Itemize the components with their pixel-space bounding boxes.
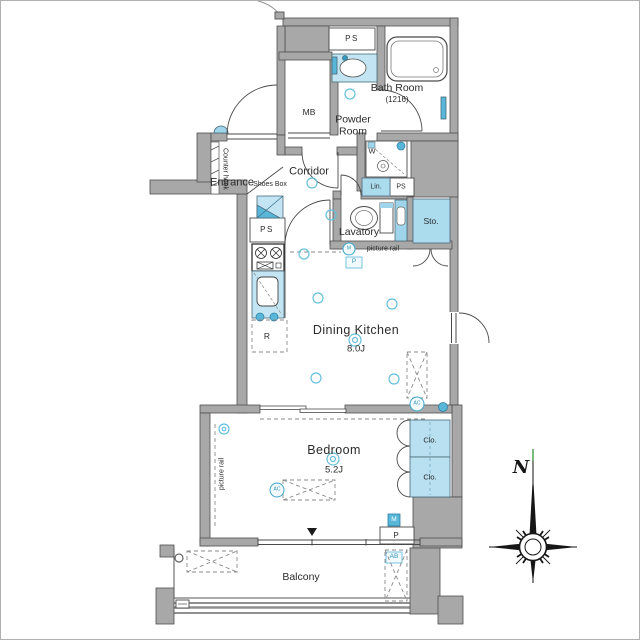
storage-door-left [413,249,430,266]
label-ac-dk: AC [414,402,421,407]
label-corridor: Corridor [289,167,329,178]
label-storage: Sto. [423,217,438,226]
entrance-light [214,126,228,133]
label-closet-1: Clo. [423,436,436,444]
label-linen: Lin. [370,184,381,191]
label-meter-box: MB [303,108,316,117]
floor-plan: PS Bath Room (1216) Powder Room MB Entra… [0,0,640,640]
compass-rose [489,449,577,583]
label-refrigerator: R [264,332,270,341]
label-ps-kitchen: PS [260,226,274,234]
label-panel-dk: P [352,259,356,266]
tag-circles [270,243,424,497]
closet-door-1 [397,420,410,446]
label-dk-size: 8.0J [347,344,365,354]
label-picture-rail-bedroom: picture rail [219,458,226,490]
floor-plan-drawing [0,0,640,640]
corridor-dk-door [285,200,330,245]
outlet-marker [439,403,448,412]
label-balcony: Balcony [282,572,319,583]
label-dining-kitchen: Dining Kitchen [313,324,399,337]
label-meter-circle: M [347,247,351,252]
label-shoes-box: Shoes Box [253,181,287,189]
label-ps-mid: PS [396,184,405,191]
storage-door-right [431,249,448,266]
bath-towel-bar [441,97,446,119]
label-entrance: Entrance [210,178,254,189]
label-compass-north: N [513,459,529,477]
label-meter-bottom: M [391,517,396,524]
sliding-door [260,406,346,413]
label-bath-size: (1216) [385,96,408,104]
label-closet-2: Clo. [423,473,436,481]
kitchen [252,244,284,321]
label-bedroom-size: 5.2J [325,465,343,475]
side-window-swing [459,313,489,343]
closet-door-2 [397,446,410,472]
label-panel-bottom: P [393,532,398,540]
entrance-door [227,85,277,135]
label-picture-rail-dk: picture rail [367,246,399,253]
label-ac-bedroom: AC [274,488,281,493]
dashed-elements [187,252,428,601]
label-ac-outdoor: AB [390,554,399,561]
label-ps-top: PS [345,35,359,43]
label-powder-room: Powder Room [327,114,379,138]
label-bath-room: Bath Room [371,83,424,94]
label-bedroom: Bedroom [307,444,361,457]
label-washer: W [368,147,375,155]
label-lavatory: Lavatory [339,227,379,238]
closet-door-3 [398,472,411,497]
kitchen-sink [257,277,278,306]
bathtub [387,37,447,81]
label-counter-hook: Counter hook [222,148,229,190]
window-center-mark [307,528,317,536]
